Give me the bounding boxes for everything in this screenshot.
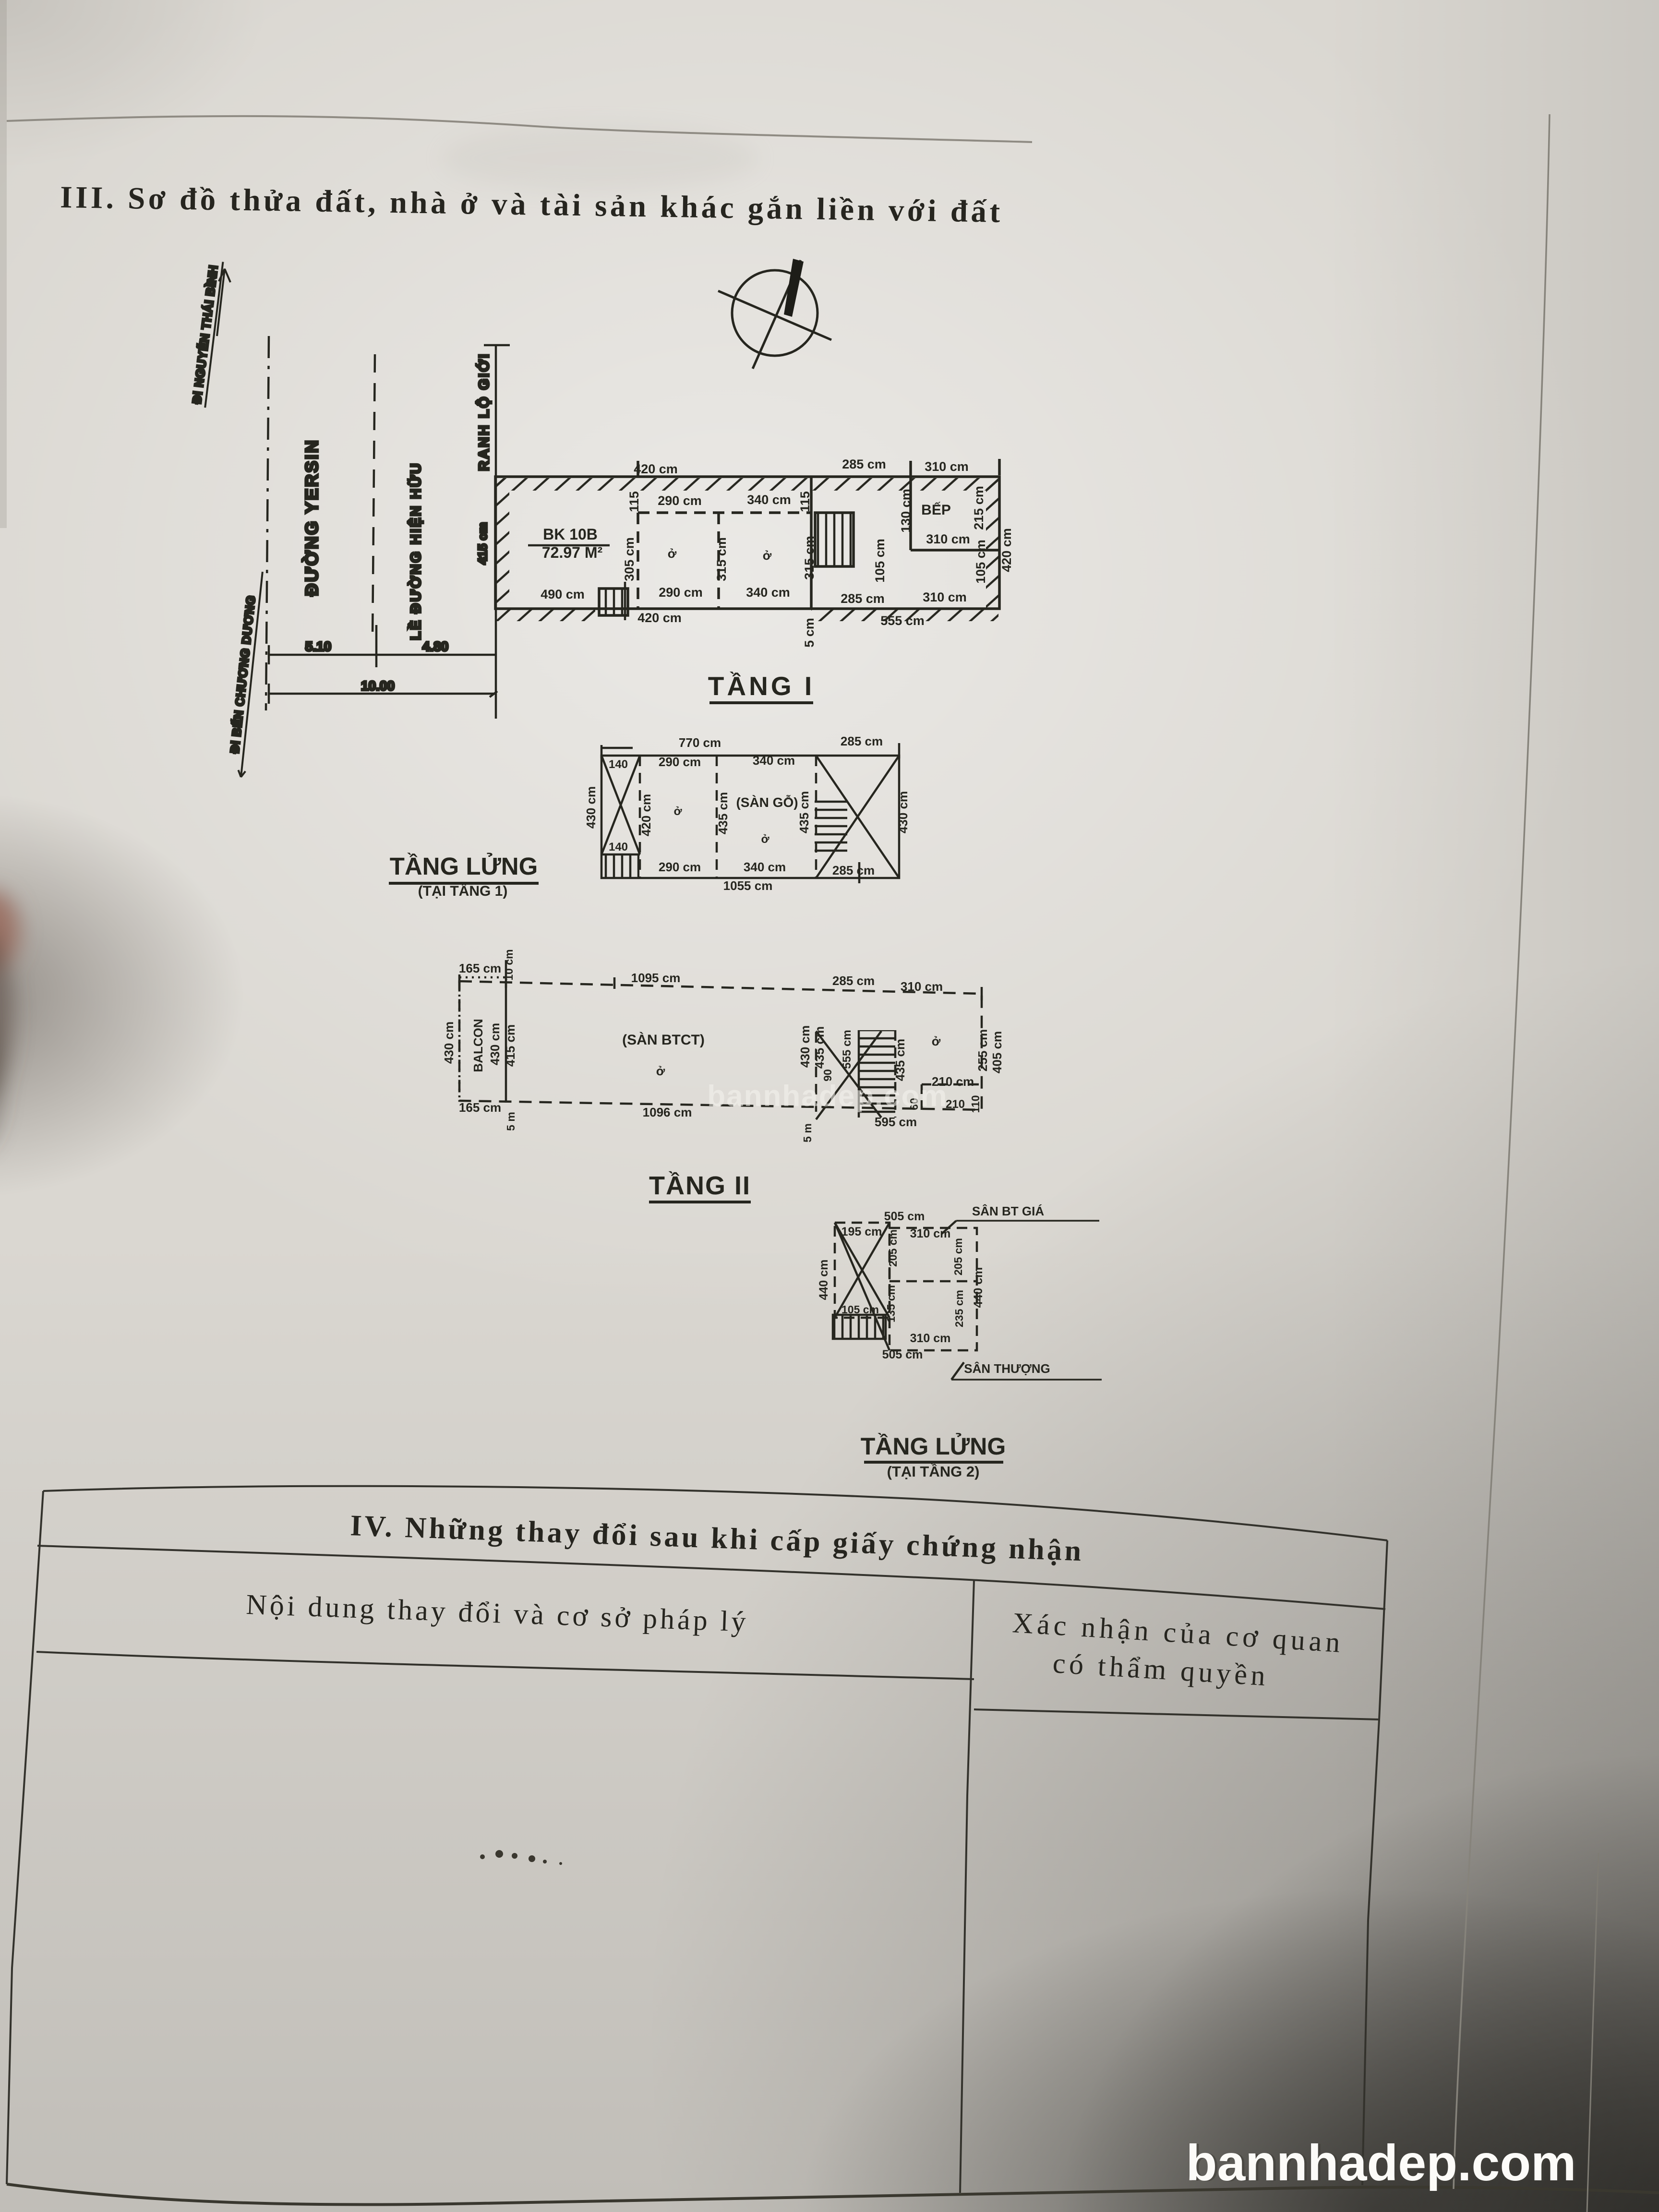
svg-text:SÂN THƯỢNG: SÂN THƯỢNG — [964, 1361, 1050, 1376]
svg-text:ở: ở — [761, 833, 769, 846]
svg-text:165 cm: 165 cm — [459, 1100, 501, 1115]
svg-text:430 cm: 430 cm — [798, 1025, 812, 1068]
svg-text:420 cm: 420 cm — [639, 794, 653, 836]
svg-text:140: 140 — [609, 758, 628, 771]
svg-text:310 cm: 310 cm — [910, 1227, 951, 1240]
svg-text:5 m: 5 m — [505, 1112, 517, 1131]
svg-text:1055 cm: 1055 cm — [723, 878, 773, 893]
svg-text:1096 cm: 1096 cm — [643, 1105, 692, 1119]
svg-text:bannhadep.com: bannhadep.com — [1186, 2135, 1576, 2191]
svg-text:310 cm: 310 cm — [926, 532, 970, 546]
svg-text:(TẠI TẦNG 2): (TẠI TẦNG 2) — [887, 1463, 980, 1480]
svg-text:285 cm: 285 cm — [832, 863, 875, 878]
svg-text:LỀ ĐƯỜNG HIỆN HỮU: LỀ ĐƯỜNG HIỆN HỮU — [408, 462, 424, 640]
svg-text:235 cm: 235 cm — [953, 1290, 965, 1327]
svg-text:10 cm: 10 cm — [503, 949, 515, 980]
svg-text:435 cm: 435 cm — [797, 791, 811, 833]
svg-text:Nội dung thay đổi và cơ sở phá: Nội dung thay đổi và cơ sở pháp lý — [246, 1588, 749, 1638]
svg-text:115: 115 — [627, 491, 641, 512]
svg-text:310 cm: 310 cm — [901, 979, 943, 994]
svg-text:255 cm: 255 cm — [975, 1029, 990, 1071]
svg-text:430 cm: 430 cm — [584, 786, 598, 829]
svg-text:435 cm: 435 cm — [893, 1039, 907, 1081]
svg-text:10.00: 10.00 — [361, 678, 395, 693]
svg-text:205 cm: 205 cm — [887, 1229, 899, 1267]
svg-text:440 cm: 440 cm — [817, 1260, 830, 1300]
svg-text:bannhadep.com: bannhadep.com — [707, 1080, 948, 1113]
svg-text:290 cm: 290 cm — [658, 493, 702, 508]
svg-text:TẦNG II: TẦNG II — [649, 1171, 751, 1200]
svg-text:4.80: 4.80 — [422, 639, 449, 654]
svg-text:430 cm: 430 cm — [896, 791, 910, 833]
svg-text:420 cm: 420 cm — [999, 528, 1014, 572]
svg-text:195 cm: 195 cm — [842, 1225, 882, 1238]
svg-text:435 cm: 435 cm — [812, 1026, 827, 1069]
svg-text:5 cm: 5 cm — [802, 618, 817, 648]
svg-text:có thẩm quyền: có thẩm quyền — [1052, 1647, 1270, 1692]
svg-text:290 cm: 290 cm — [659, 585, 703, 600]
svg-text:1095 cm: 1095 cm — [631, 971, 681, 985]
svg-text:505 cm: 505 cm — [882, 1348, 923, 1361]
svg-text:135 cm: 135 cm — [885, 1285, 897, 1322]
svg-text:555 cm: 555 cm — [880, 613, 925, 628]
svg-text:290 cm: 290 cm — [659, 860, 701, 874]
svg-text:435 cm: 435 cm — [716, 792, 730, 834]
svg-text:285 cm: 285 cm — [841, 591, 885, 606]
svg-text:310 cm: 310 cm — [910, 1332, 951, 1345]
svg-text:ĐƯỜNG YERSIN: ĐƯỜNG YERSIN — [301, 439, 322, 596]
svg-text:415 cm: 415 cm — [503, 1024, 517, 1067]
svg-text:(TẠI TẦNG 1): (TẠI TẦNG 1) — [418, 883, 508, 899]
svg-text:290 cm: 290 cm — [659, 755, 701, 769]
svg-text:105 cm: 105 cm — [842, 1303, 879, 1316]
svg-text:130 cm: 130 cm — [899, 489, 913, 533]
svg-text:310 cm: 310 cm — [923, 590, 967, 604]
svg-text:5.10: 5.10 — [305, 639, 332, 654]
svg-text:BẾP: BẾP — [921, 502, 951, 518]
svg-text:595 cm: 595 cm — [875, 1115, 917, 1129]
svg-text:555 cm: 555 cm — [841, 1030, 854, 1069]
svg-text:315 cm: 315 cm — [714, 537, 729, 581]
svg-text:315 cm: 315 cm — [802, 536, 817, 580]
svg-text:BK 10B: BK 10B — [543, 526, 598, 543]
svg-text:TẦNG I: TẦNG I — [708, 671, 815, 701]
svg-text:TẦNG LỬNG: TẦNG LỬNG — [390, 852, 538, 880]
svg-text:III. Sơ đồ thửa đất, nhà ở và: III. Sơ đồ thửa đất, nhà ở và tài sản kh… — [60, 180, 1003, 229]
svg-text:165 cm: 165 cm — [459, 961, 501, 975]
svg-text:(SÀN GỖ): (SÀN GỖ) — [736, 795, 798, 810]
svg-text:110: 110 — [969, 1095, 982, 1113]
svg-text:420 cm: 420 cm — [634, 462, 678, 476]
svg-text:(SÀN BTCT): (SÀN BTCT) — [622, 1032, 705, 1048]
svg-text:340 cm: 340 cm — [746, 585, 790, 600]
svg-text:205 cm: 205 cm — [952, 1238, 964, 1275]
svg-text:490 cm: 490 cm — [541, 587, 585, 601]
svg-text:305 cm: 305 cm — [622, 537, 637, 581]
svg-text:430 cm: 430 cm — [488, 1023, 502, 1065]
svg-text:105 cm: 105 cm — [873, 539, 887, 583]
svg-text:ở: ở — [673, 805, 682, 818]
svg-text:105 cm: 105 cm — [974, 540, 988, 584]
svg-text:ở: ở — [932, 1034, 941, 1048]
svg-text:140: 140 — [609, 841, 628, 854]
svg-text:340 cm: 340 cm — [753, 753, 795, 768]
svg-text:ở: ở — [668, 546, 677, 561]
svg-text:5 m: 5 m — [801, 1123, 814, 1142]
svg-text:72.97 M²: 72.97 M² — [542, 544, 602, 561]
svg-text:285 cm: 285 cm — [842, 457, 886, 471]
svg-text:420 cm: 420 cm — [637, 611, 682, 625]
svg-text:215 cm: 215 cm — [972, 486, 986, 530]
svg-text:210: 210 — [946, 1098, 965, 1111]
svg-text:310 cm: 310 cm — [925, 459, 969, 474]
svg-text:RANH LỘ GIỚI: RANH LỘ GIỚI — [476, 353, 492, 471]
svg-text:505 cm: 505 cm — [884, 1210, 925, 1223]
svg-text:405 cm: 405 cm — [990, 1031, 1004, 1073]
svg-text:SÂN BT GIÁ: SÂN BT GIÁ — [972, 1204, 1044, 1218]
svg-text:115: 115 — [798, 491, 812, 512]
svg-text:ở: ở — [656, 1064, 665, 1078]
svg-text:TẦNG LỬNG: TẦNG LỬNG — [861, 1432, 1006, 1460]
svg-text:770 cm: 770 cm — [679, 735, 721, 750]
svg-text:285 cm: 285 cm — [832, 974, 875, 988]
svg-text:285 cm: 285 cm — [841, 734, 883, 748]
svg-text:Đi BẾN CHƯƠNG DƯƠNG: Đi BẾN CHƯƠNG DƯƠNG — [228, 594, 258, 754]
svg-text:440 cm: 440 cm — [972, 1267, 985, 1308]
svg-text:340 cm: 340 cm — [744, 860, 786, 874]
svg-text:415 cm: 415 cm — [475, 522, 490, 565]
svg-text:340 cm: 340 cm — [747, 493, 791, 507]
svg-text:430 cm: 430 cm — [442, 1022, 456, 1064]
svg-text:BALCON: BALCON — [471, 1019, 485, 1072]
svg-text:Đi NGUYỄN THÁI BÌNH: Đi NGUYỄN THÁI BÌNH — [189, 264, 220, 405]
svg-text:ở: ở — [763, 548, 772, 563]
